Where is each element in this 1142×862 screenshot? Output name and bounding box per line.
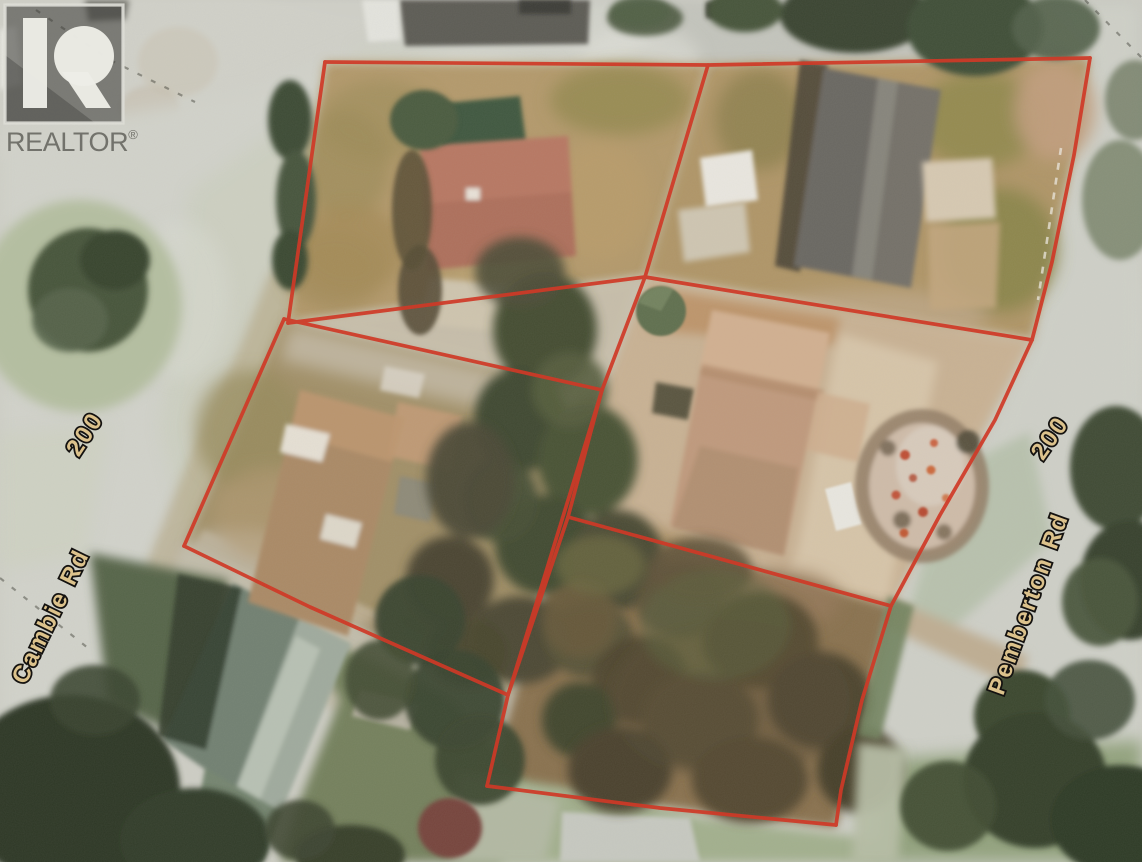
svg-text:REALTOR®: REALTOR®	[6, 127, 138, 157]
